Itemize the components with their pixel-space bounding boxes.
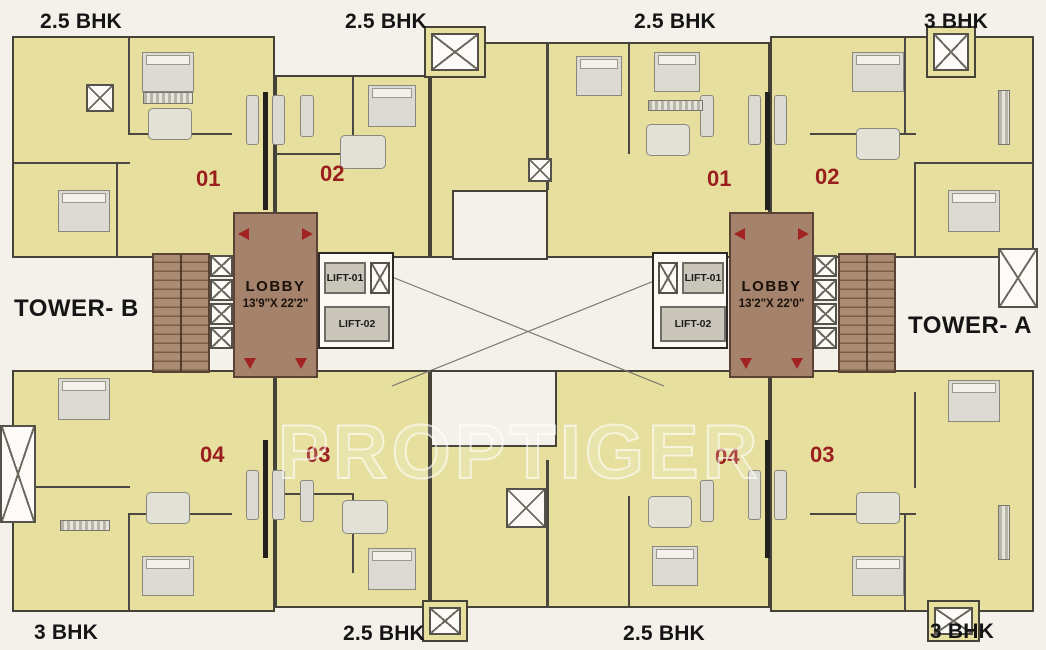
partition-13 [128, 515, 130, 610]
projection-top-a [926, 26, 976, 78]
sofa-6 [272, 470, 285, 520]
unit-number-a-03: 03 [810, 444, 834, 466]
staircase-tower-a [838, 253, 896, 373]
lobby-b-arrow-down-1 [244, 358, 256, 369]
shaft-xbox-far-right [998, 248, 1038, 308]
partition-3 [12, 162, 130, 164]
sofa-2 [272, 95, 285, 145]
projection-top-a-xbox [933, 33, 969, 71]
core-xbox-b-1 [210, 255, 233, 277]
sofa-3 [748, 95, 761, 145]
shaft-xbox-top-middle [528, 158, 552, 182]
bed-6 [852, 52, 904, 92]
core-xbox-a-3 [814, 303, 837, 325]
sofa-8 [774, 470, 787, 520]
shaft-xbox-b01 [86, 84, 114, 112]
partition-4 [116, 162, 118, 258]
projection-top-b-xbox [431, 33, 479, 71]
partition-11 [914, 162, 916, 258]
corridor-wall-1 [263, 92, 268, 210]
lift-block-tower-a: LIFT-01 LIFT-02 [652, 252, 728, 349]
sofa-4 [774, 95, 787, 145]
dining-table-3 [646, 124, 690, 156]
bed-4 [576, 56, 622, 96]
bhk-label-top-4: 3 BHK [924, 11, 988, 32]
bed-10 [368, 548, 416, 590]
bhk-label-top-1: 2.5 BHK [40, 11, 122, 32]
corridor-wall-4 [765, 440, 770, 558]
tower-a-label: TOWER- A [908, 314, 1032, 338]
dining-table-4 [856, 128, 900, 160]
bhk-label-bottom-4: 3 BHK [930, 621, 994, 642]
partition-9 [904, 38, 906, 135]
lobby-a-arrow-left [734, 228, 745, 240]
projection-bottom-b [422, 600, 468, 642]
wardrobe-5 [998, 505, 1010, 560]
sofa-7 [748, 470, 761, 520]
bhk-label-bottom-3: 2.5 BHK [623, 623, 705, 644]
lift-a-1: LIFT-01 [682, 262, 724, 294]
bhk-label-bottom-2: 2.5 BHK [343, 623, 425, 644]
core-xbox-a-4 [814, 327, 837, 349]
sofa-12 [700, 480, 714, 522]
partition-18 [546, 460, 549, 608]
unit-number-b-02: 02 [320, 163, 344, 185]
partition-17 [275, 493, 354, 495]
core-xbox-a-2 [814, 279, 837, 301]
bed-2 [58, 190, 110, 232]
shaft-xbox-bottom-middle [506, 488, 546, 528]
core-xbox-b-3 [210, 303, 233, 325]
lift-b-1: LIFT-01 [324, 262, 366, 294]
partition-12 [914, 162, 1034, 164]
lobby-a-title: LOBBY [742, 278, 802, 295]
sofa-5 [246, 470, 259, 520]
unit-number-b-01: 01 [196, 168, 220, 190]
corridor-wall-3 [263, 440, 268, 558]
dining-table-5 [146, 492, 190, 524]
floor-plan-canvas: LOBBY 13'9"X 22'2" LIFT-01 LIFT-02 LIFT-… [0, 0, 1046, 650]
partition-1 [128, 38, 130, 135]
wardrobe-3 [998, 90, 1010, 145]
core-xbox-b-2 [210, 279, 233, 301]
lift-b-2: LIFT-02 [324, 306, 390, 342]
corridor-wall-2 [765, 92, 770, 210]
partition-22 [914, 392, 916, 488]
bed-12 [852, 556, 904, 596]
tower-b-label: TOWER- B [14, 297, 139, 321]
bed-9 [142, 556, 194, 596]
courtyard-recess-top [452, 190, 548, 260]
partition-8 [628, 44, 630, 154]
courtyard-recess-bottom [430, 370, 557, 447]
unit-number-a-04: 04 [715, 446, 739, 468]
dining-table-1 [148, 108, 192, 140]
lift-shaft-xbox-b [370, 262, 390, 294]
partition-20 [904, 515, 906, 610]
bed-7 [948, 190, 1000, 232]
lift-shaft-xbox-a [658, 262, 678, 294]
lobby-a-arrow-right [798, 228, 809, 240]
bed-3 [368, 85, 416, 127]
sofa-9 [300, 95, 314, 137]
lobby-a-arrow-down-2 [791, 358, 803, 369]
staircase-tower-b [152, 253, 210, 373]
dining-table-8 [856, 492, 900, 524]
lobby-tower-b: LOBBY 13'9"X 22'2" [233, 212, 318, 378]
lift-a-2: LIFT-02 [660, 306, 726, 342]
lobby-b-arrow-right [302, 228, 313, 240]
wardrobe-2 [648, 100, 703, 111]
lift-block-tower-b: LIFT-01 LIFT-02 [318, 252, 394, 349]
bed-13 [948, 380, 1000, 422]
unit-number-a-01: 01 [707, 168, 731, 190]
unit-number-b-04: 04 [200, 444, 224, 466]
wardrobe-4 [60, 520, 110, 531]
sofa-1 [246, 95, 259, 145]
unit-number-a-02: 02 [815, 166, 839, 188]
shaft-xbox-far-left [0, 425, 36, 523]
bed-1 [142, 52, 194, 92]
core-xbox-a-1 [814, 255, 837, 277]
bhk-label-bottom-1: 3 BHK [34, 622, 98, 643]
lobby-a-arrow-down-1 [740, 358, 752, 369]
lobby-tower-a: LOBBY 13'2"X 22'0" [729, 212, 814, 378]
dining-table-7 [648, 496, 692, 528]
projection-bottom-b-xbox [429, 607, 461, 635]
unit-number-b-03: 03 [306, 444, 330, 466]
core-xbox-b-4 [210, 327, 233, 349]
dining-table-2 [340, 135, 386, 169]
partition-19 [628, 496, 630, 606]
bed-8 [58, 378, 110, 420]
bed-11 [652, 546, 698, 586]
wardrobe-1 [143, 92, 193, 104]
bed-5 [654, 52, 700, 92]
lobby-b-title: LOBBY [246, 278, 306, 295]
lobby-b-dims: 13'9"X 22'2" [243, 296, 309, 312]
lobby-b-arrow-left [238, 228, 249, 240]
lobby-b-arrow-down-2 [295, 358, 307, 369]
bhk-label-top-2: 2.5 BHK [345, 11, 427, 32]
bhk-label-top-3: 2.5 BHK [634, 11, 716, 32]
lobby-a-dims: 13'2"X 22'0" [739, 296, 805, 312]
projection-top-b [424, 26, 486, 78]
sofa-11 [300, 480, 314, 522]
dining-table-6 [342, 500, 388, 534]
